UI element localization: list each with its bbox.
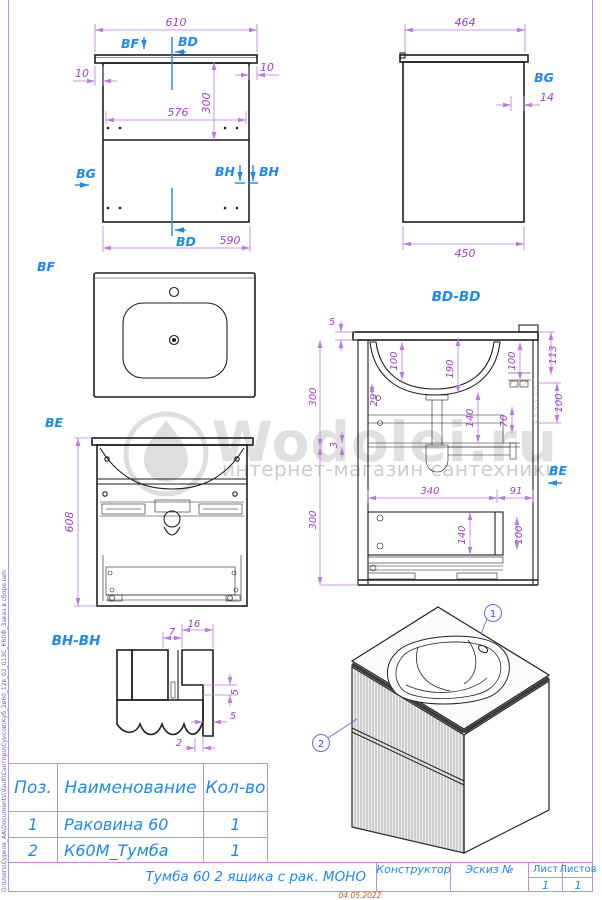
title-block: Тумба 60 2 ящика с рак. МОНО Конструктор…: [8, 862, 593, 892]
dim-100-right: 100: [554, 393, 565, 412]
frame-left-border: [8, 0, 9, 892]
dim-7: 7: [169, 627, 176, 638]
balloon-1: 1: [490, 609, 496, 620]
bf-view-drawing: BF: [30, 255, 280, 405]
col-header-name: Наименование: [57, 763, 203, 811]
dim-5-gap: 5: [230, 711, 236, 722]
file-path-text: D:\Users\Сурков_АА\Documents\Vault\Сантп…: [1, 570, 8, 892]
iso-cabinet: [352, 607, 549, 855]
dim-29: 29: [369, 394, 380, 407]
dim-70: 70: [499, 415, 510, 428]
dim-10-left: 10: [75, 67, 89, 80]
section-label-bg-side: BG: [534, 70, 554, 85]
be-view-geometry: [92, 438, 253, 606]
dim-608: 608: [63, 512, 76, 533]
dim-16: 16: [188, 619, 201, 630]
view-label-be: BE: [45, 415, 64, 430]
side-view-dimensions: 464 14 450: [403, 16, 554, 260]
row1-name: Раковина 60: [57, 811, 203, 837]
slide-bracket: [508, 373, 531, 387]
dim-450: 450: [455, 247, 476, 260]
sheets-value: 1: [562, 877, 593, 892]
col-header-qty: Кол-во: [203, 763, 268, 811]
table-row: 2 К60М_Тумба 1: [8, 837, 268, 863]
drawing-date: 04.05.2022: [330, 891, 390, 900]
section-label-bf: BF: [121, 36, 140, 51]
dim-113: 113: [548, 345, 559, 364]
row2-qty: 1: [203, 837, 268, 863]
sketch-number-value: [450, 877, 528, 892]
sketch-number-label: Эскиз №: [450, 862, 528, 877]
dim-610: 610: [166, 16, 187, 29]
drawer-slide-hardware: [100, 500, 244, 516]
dim-10-right: 10: [260, 61, 274, 74]
dim-300-top: 300: [308, 387, 319, 406]
drain-and-trap: [426, 395, 516, 472]
bd-section-dimensions: 5 300 100 190 100 113 100 29 140 70: [308, 317, 565, 585]
dim-340: 340: [420, 486, 439, 497]
row1-pos: 1: [8, 811, 57, 837]
dim-190: 190: [445, 359, 456, 378]
dim-3: 3: [329, 442, 340, 448]
dim-91: 91: [510, 486, 523, 497]
dim-100-bottom: 100: [514, 525, 525, 544]
dim-5-step: 5: [230, 689, 241, 695]
lower-drawer-section: [368, 512, 503, 579]
dim-140-bottom: 140: [457, 525, 468, 544]
bh-detail-geometry: [117, 650, 213, 736]
bottom-panel-piece: [117, 700, 203, 735]
section-label-bh-left: BH: [215, 164, 236, 179]
be-view-dimensions: 608: [63, 438, 97, 606]
dim-464: 464: [455, 16, 476, 29]
bh-bh-detail-drawing: BH-BH 16 7 5 5 2: [45, 618, 260, 773]
row2-name: К60М_Тумба: [57, 837, 203, 863]
lower-drawer: [103, 555, 241, 601]
section-label-be-arrow: BE: [549, 463, 568, 478]
sheets-label: Листов: [562, 862, 593, 877]
drawing-title: Тумба 60 2 ящика с рак. МОНО: [8, 862, 376, 892]
view-label-bf: BF: [37, 259, 56, 274]
dim-100-left: 100: [389, 351, 400, 370]
section-label-bd-bottom: BD: [176, 234, 196, 249]
section-title-bh-bh: BH-BH: [52, 633, 101, 649]
section-title-bd-bd: BD-BD: [432, 289, 481, 305]
bd-bd-section-drawing: BD-BD: [305, 285, 602, 600]
col-header-pos: Поз.: [8, 763, 57, 811]
section-label-bd-top: BD: [178, 34, 198, 49]
row2-pos: 2: [8, 837, 57, 863]
parts-table-header: Поз. Наименование Кол-во: [8, 763, 268, 811]
constructor-label: Конструктор: [376, 862, 450, 877]
dim-300-bottom: 300: [308, 510, 319, 529]
sheet-label: Лист: [528, 862, 562, 877]
side-view-geometry: [400, 53, 528, 222]
parts-table: Поз. Наименование Кол-во 1 Раковина 60 1…: [8, 763, 268, 863]
be-view-drawing: BE: [30, 405, 290, 633]
isometric-view-drawing: 1 2: [300, 585, 600, 877]
row1-qty: 1: [203, 811, 268, 837]
dim-100-mid: 100: [507, 351, 518, 370]
sink-top-geometry: [94, 273, 255, 397]
front-view-geometry: [95, 55, 257, 222]
drawing-sheet: Wodolei.ru интернет-магазин сантехники: [0, 0, 602, 900]
dim-2: 2: [176, 738, 182, 749]
side-view-drawing: 464 14 450 BG: [388, 8, 602, 260]
dim-576: 576: [168, 106, 189, 119]
dim-140-top: 140: [465, 408, 476, 427]
dim-590: 590: [220, 234, 241, 247]
constructor-value: [376, 877, 450, 892]
balloon-2: 2: [318, 739, 324, 750]
table-row: 1 Раковина 60 1: [8, 811, 268, 837]
dim-300: 300: [200, 93, 213, 114]
siphon: [164, 511, 180, 535]
section-label-bh-right: BH: [259, 164, 280, 179]
dim-14: 14: [540, 91, 554, 104]
dim-5: 5: [329, 317, 335, 328]
front-view-drawing: 610 10 10 576 300 590 BF BD BD: [55, 8, 290, 258]
iso-basin: [387, 636, 509, 704]
faucet-hole: [170, 288, 179, 297]
sheet-value: 1: [528, 877, 562, 892]
profile-step-piece: [182, 650, 213, 736]
section-label-bg: BG: [76, 166, 96, 181]
